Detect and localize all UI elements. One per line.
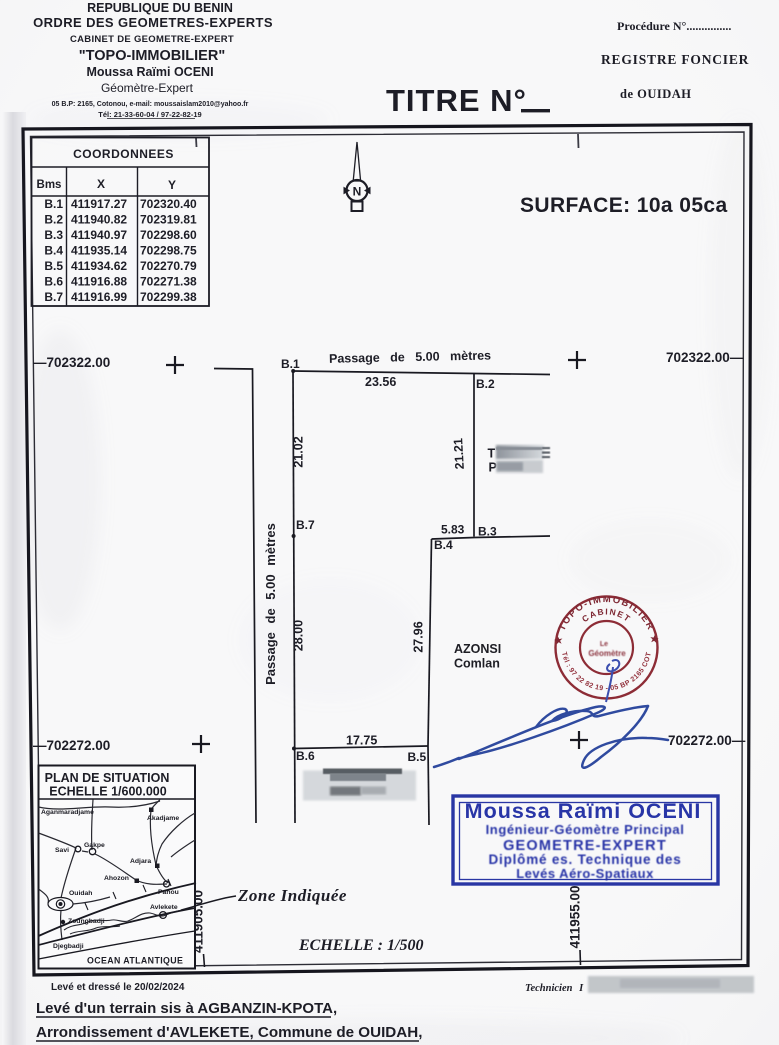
svg-text:Gakpe: Gakpe (84, 842, 105, 849)
svg-text:Akadjame: Akadjame (147, 815, 179, 822)
svg-text:B.2: B.2 (44, 213, 63, 227)
svg-text:702320.40: 702320.40 (140, 197, 197, 211)
svg-text:411916.99: 411916.99 (71, 290, 127, 304)
svg-text:Aganmaradjame: Aganmaradjame (41, 809, 94, 816)
svg-text:REPUBLIQUE DU BENIN: REPUBLIQUE DU BENIN (87, 1, 233, 15)
svg-text:702319.81: 702319.81 (140, 213, 197, 227)
svg-text:Y: Y (168, 178, 176, 192)
svg-text:702270.79: 702270.79 (140, 259, 197, 273)
svg-text:Moussa Raïmi OCENI: Moussa Raïmi OCENI (86, 65, 213, 79)
svg-text:411940.82: 411940.82 (71, 213, 127, 227)
svg-text:23.56: 23.56 (365, 375, 396, 389)
svg-text:B.5: B.5 (44, 259, 63, 273)
svg-text:411934.62: 411934.62 (71, 259, 127, 273)
svg-text:B.6: B.6 (44, 275, 63, 289)
svg-text:702299.38: 702299.38 (140, 290, 197, 304)
svg-text:Géomètre: Géomètre (588, 649, 626, 658)
svg-text:P: P (489, 461, 497, 475)
svg-text:411935.14: 411935.14 (71, 244, 127, 258)
svg-text:Pahou: Pahou (158, 889, 179, 896)
svg-text:Diplômé es. Technique des: Diplômé es. Technique des (488, 852, 681, 867)
svg-text:Ingénieur-Géomètre Principal: Ingénieur-Géomètre Principal (486, 822, 685, 837)
svg-text:Savi: Savi (55, 847, 69, 854)
svg-text:411916.88: 411916.88 (71, 275, 127, 289)
svg-text:Arrondissement d'AVLEKETE, Com: Arrondissement d'AVLEKETE, Commune de OU… (36, 1024, 422, 1041)
svg-text:B.7: B.7 (296, 518, 315, 532)
svg-text:Tél: 21-33-60-04 / 97-22-82-19: Tél: 21-33-60-04 / 97-22-82-19 (98, 110, 201, 119)
svg-text:Technicien I: Technicien I (525, 983, 584, 994)
svg-text:ORDRE DES GEOMETRES-EXPERTS: ORDRE DES GEOMETRES-EXPERTS (33, 15, 273, 30)
svg-text:REGISTRE FONCIER: REGISTRE FONCIER (601, 52, 749, 67)
svg-text:B.6: B.6 (296, 749, 315, 763)
svg-text:Le: Le (600, 641, 608, 648)
svg-text:OCEAN ATLANTIQUE: OCEAN ATLANTIQUE (87, 956, 183, 966)
svg-text:SURFACE: 10a 05ca: SURFACE: 10a 05ca (520, 194, 728, 217)
svg-text:702272.00—: 702272.00— (668, 733, 746, 748)
svg-text:411955.00: 411955.00 (568, 885, 583, 948)
svg-text:Passage de 5.00 mètres: Passage de 5.00 mètres (263, 523, 278, 685)
svg-text:COORDONNEES: COORDONNEES (73, 147, 174, 161)
svg-text:—702272.00: —702272.00 (33, 738, 110, 753)
svg-text:TITRE N°: TITRE N° (386, 83, 527, 118)
svg-text:T: T (488, 447, 496, 461)
svg-text:Ahozon: Ahozon (104, 875, 129, 882)
svg-text:21.21: 21.21 (451, 438, 467, 470)
svg-text:411917.27: 411917.27 (71, 197, 127, 211)
svg-text:702298.75: 702298.75 (140, 244, 197, 258)
svg-text:Levé et dressé le 20/02/2024: Levé et dressé le 20/02/2024 (51, 982, 185, 993)
svg-text:Avlekete: Avlekete (150, 904, 178, 911)
svg-text:PLAN DE SITUATION: PLAN DE SITUATION (45, 771, 170, 785)
svg-text:Levés Aéro-Spatiaux: Levés Aéro-Spatiaux (516, 866, 654, 881)
svg-text:Zone Indiquée: Zone Indiquée (237, 886, 347, 905)
svg-text:B.3: B.3 (44, 228, 63, 242)
svg-text:Géomètre-Expert: Géomètre-Expert (101, 81, 194, 95)
svg-text:B.2: B.2 (476, 377, 495, 391)
svg-text:ECHELLE 1/600.000: ECHELLE 1/600.000 (49, 785, 166, 799)
svg-text:B.3: B.3 (478, 525, 497, 539)
svg-text:411940.97: 411940.97 (71, 228, 127, 242)
svg-text:Ouidah: Ouidah (69, 890, 92, 897)
svg-text:702322.00—: 702322.00— (666, 350, 744, 365)
svg-text:CABINET DE GEOMETRE-EXPERT: CABINET DE GEOMETRE-EXPERT (70, 34, 234, 45)
svg-text:Comlan: Comlan (454, 657, 500, 671)
svg-text:B.5: B.5 (408, 750, 427, 764)
svg-text:B.1: B.1 (44, 197, 63, 211)
svg-text:27.96: 27.96 (412, 621, 426, 652)
svg-text:Levé d'un terrain sis à AGBANZ: Levé d'un terrain sis à AGBANZIN-KPOTA, (36, 1000, 337, 1017)
svg-text:Adjara: Adjara (130, 858, 151, 865)
svg-text:B.4: B.4 (44, 244, 63, 258)
svg-text:Bms: Bms (37, 179, 62, 191)
svg-text:"TOPO-IMMOBILIER": "TOPO-IMMOBILIER" (79, 48, 225, 64)
svg-text:B.4: B.4 (434, 538, 453, 552)
svg-text:5.83: 5.83 (441, 523, 465, 537)
svg-text:28.00: 28.00 (292, 620, 306, 651)
svg-text:—702322.00: —702322.00 (33, 355, 110, 370)
svg-text:X: X (97, 177, 105, 191)
svg-text:Djegbadji: Djegbadji (53, 943, 84, 950)
svg-text:N: N (353, 185, 362, 199)
svg-text:Procédure N°...............: Procédure N°............... (617, 19, 731, 33)
svg-text:B.1: B.1 (281, 357, 300, 371)
svg-text:702298.60: 702298.60 (140, 228, 197, 242)
svg-text:21.02: 21.02 (292, 436, 306, 467)
svg-text:B.7: B.7 (44, 290, 63, 304)
svg-text:de OUIDAH: de OUIDAH (620, 87, 692, 101)
svg-text:Zoungbadji: Zoungbadji (68, 918, 105, 925)
svg-text:702271.38: 702271.38 (140, 275, 197, 289)
svg-text:AZONSI: AZONSI (454, 642, 501, 656)
svg-text:Moussa Raïmi OCENI: Moussa Raïmi OCENI (465, 799, 702, 823)
svg-text:ECHELLE : 1/500: ECHELLE : 1/500 (298, 937, 423, 954)
svg-text:17.75: 17.75 (346, 734, 377, 748)
svg-text:05 B.P: 2165, Cotonou, e-mail:: 05 B.P: 2165, Cotonou, e-mail: moussaisl… (52, 101, 249, 108)
